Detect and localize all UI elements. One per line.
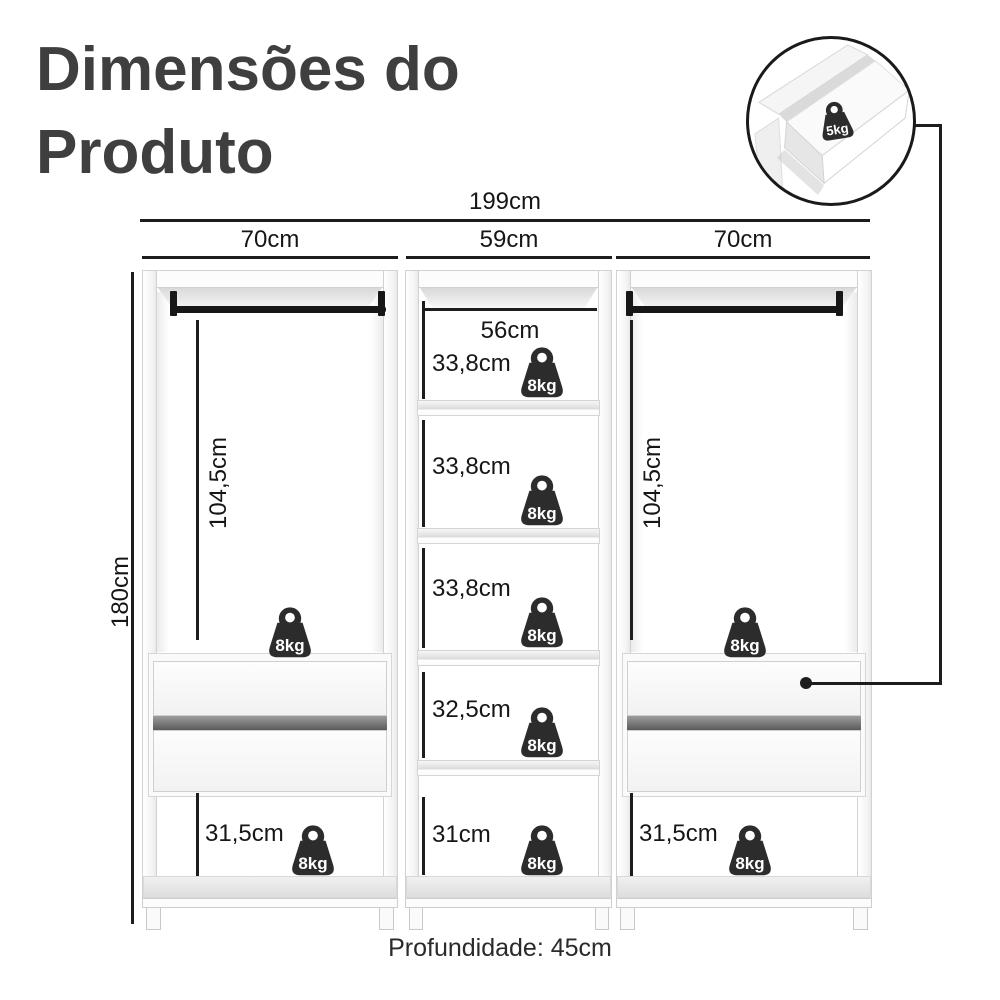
weight-capacity-label: 8kg [722, 855, 778, 872]
furniture-leg [409, 908, 423, 930]
clothes-rail [172, 306, 386, 313]
middle-unit-shelf-2 [417, 528, 600, 544]
dim-label-left-bottom: 31,5cm [205, 820, 284, 848]
left-unit-bottom-shelf [143, 876, 397, 898]
furniture-leg [379, 908, 394, 930]
weight-8kg-icon: 8kg [262, 606, 318, 660]
weight-capacity-label: 8kg [514, 377, 570, 394]
furniture-leg [620, 908, 635, 930]
weight-capacity-label: 8kg [717, 637, 773, 654]
furniture-leg [853, 908, 868, 930]
weight-5kg-icon: 5kg [812, 98, 860, 144]
right-unit-bottom-shelf [617, 876, 871, 898]
leader-dot [800, 677, 812, 689]
dim-line-middle-width [406, 256, 612, 259]
middle-unit-top-panel [405, 270, 612, 288]
weight-8kg-icon: 8kg [514, 346, 570, 400]
middle-unit-shelf-3 [417, 650, 600, 666]
dim-line-right-hanging [630, 320, 633, 640]
right-unit-top-panel [616, 270, 872, 288]
left-unit-drawer-opening [153, 716, 387, 730]
furniture-leg [595, 908, 609, 930]
middle-unit-left-post [405, 270, 419, 904]
leader-line-bottom [806, 682, 942, 685]
right-unit-right-post [857, 270, 872, 904]
right-unit-inner-shading [845, 292, 857, 652]
page-title: Dimensões do Produto [36, 28, 460, 194]
middle-unit-top-shading [420, 288, 597, 308]
weight-capacity-label: 8kg [285, 855, 341, 872]
weight-8kg-icon: 8kg [514, 596, 570, 650]
dim-label-middle-width: 59cm [406, 226, 612, 254]
right-unit-drawer-opening [627, 716, 861, 730]
dim-line-left-bottom [196, 793, 199, 876]
dim-line-left-hanging [196, 320, 199, 640]
middle-unit-bottom-shelf-front [405, 898, 612, 908]
weight-8kg-icon: 8kg [514, 474, 570, 528]
dim-label-right-width: 70cm [616, 226, 870, 254]
dim-label-middle-gap-5: 31cm [432, 821, 491, 849]
right-unit-left-post [616, 270, 631, 904]
left-unit-right-post [383, 270, 398, 904]
left-unit-drawer-front-2 [153, 730, 387, 792]
left-unit-drawer-front-1 [153, 661, 387, 716]
dim-line-middle-gap-2 [422, 420, 425, 527]
dim-label-total-width: 199cm [140, 188, 870, 216]
leader-line-vertical [939, 124, 942, 685]
page-title-line2: Produto [36, 111, 460, 194]
weight-8kg-icon: 8kg [285, 824, 341, 878]
dim-line-right-width [616, 256, 870, 259]
weight-8kg-icon: 8kg [717, 606, 773, 660]
dim-line-right-bottom [630, 793, 633, 876]
dim-line-middle-gap-4 [422, 672, 425, 758]
dim-label-middle-gap-2: 33,8cm [432, 453, 511, 481]
dim-label-height: 180cm [107, 556, 135, 628]
weight-capacity-label: 8kg [514, 627, 570, 644]
left-unit-inner-shading [371, 292, 383, 652]
weight-capacity-label: 8kg [514, 855, 570, 872]
middle-unit-bottom-shelf [406, 876, 611, 898]
dim-label-left-width: 70cm [142, 226, 398, 254]
weight-capacity-label: 8kg [514, 505, 570, 522]
leader-line-top [914, 124, 942, 127]
right-unit-bottom-shelf-front [616, 898, 872, 908]
dim-label-middle-gap-4: 32,5cm [432, 696, 511, 724]
weight-8kg-icon: 8kg [514, 706, 570, 760]
depth-label: Profundidade: 45cm [300, 934, 700, 962]
weight-capacity-label: 8kg [262, 637, 318, 654]
left-unit-top-panel [142, 270, 398, 288]
weight-capacity-label: 8kg [514, 737, 570, 754]
middle-unit-shelf-1 [417, 400, 600, 416]
drawer-capacity-inset: 5kg [746, 36, 916, 206]
dim-line-total-width [140, 219, 870, 222]
middle-unit-shelf-4 [417, 760, 600, 776]
right-unit-drawer-front-2 [627, 730, 861, 792]
product-dimensions-diagram: Dimensões do Produto 199cm 70cm [0, 0, 1000, 1000]
dim-line-middle-gap-3 [422, 548, 425, 648]
weight-8kg-icon: 8kg [514, 824, 570, 878]
dim-label-middle-shelf-width: 56cm [423, 317, 597, 345]
clothes-rail [628, 306, 842, 313]
left-unit-inner-shading [157, 292, 169, 652]
dim-label-right-hanging: 104,5cm [639, 437, 667, 529]
dim-line-middle-gap-1 [422, 311, 425, 399]
middle-unit-right-post [598, 270, 612, 904]
dim-label-middle-gap-1: 33,8cm [432, 350, 511, 378]
dim-line-middle-gap-5 [422, 797, 425, 875]
weight-8kg-icon: 8kg [722, 824, 778, 878]
dim-label-middle-gap-3: 33,8cm [432, 575, 511, 603]
dim-label-right-bottom: 31,5cm [639, 820, 718, 848]
furniture-leg [146, 908, 161, 930]
left-unit-left-post [142, 270, 157, 904]
right-unit-drawer-front-1 [627, 661, 861, 716]
page-title-line1: Dimensões do [36, 28, 460, 111]
dim-line-middle-shelf-width [423, 308, 597, 311]
dim-line-left-width [142, 256, 398, 259]
left-unit-bottom-shelf-front [142, 898, 398, 908]
dim-label-left-hanging: 104,5cm [205, 437, 233, 529]
